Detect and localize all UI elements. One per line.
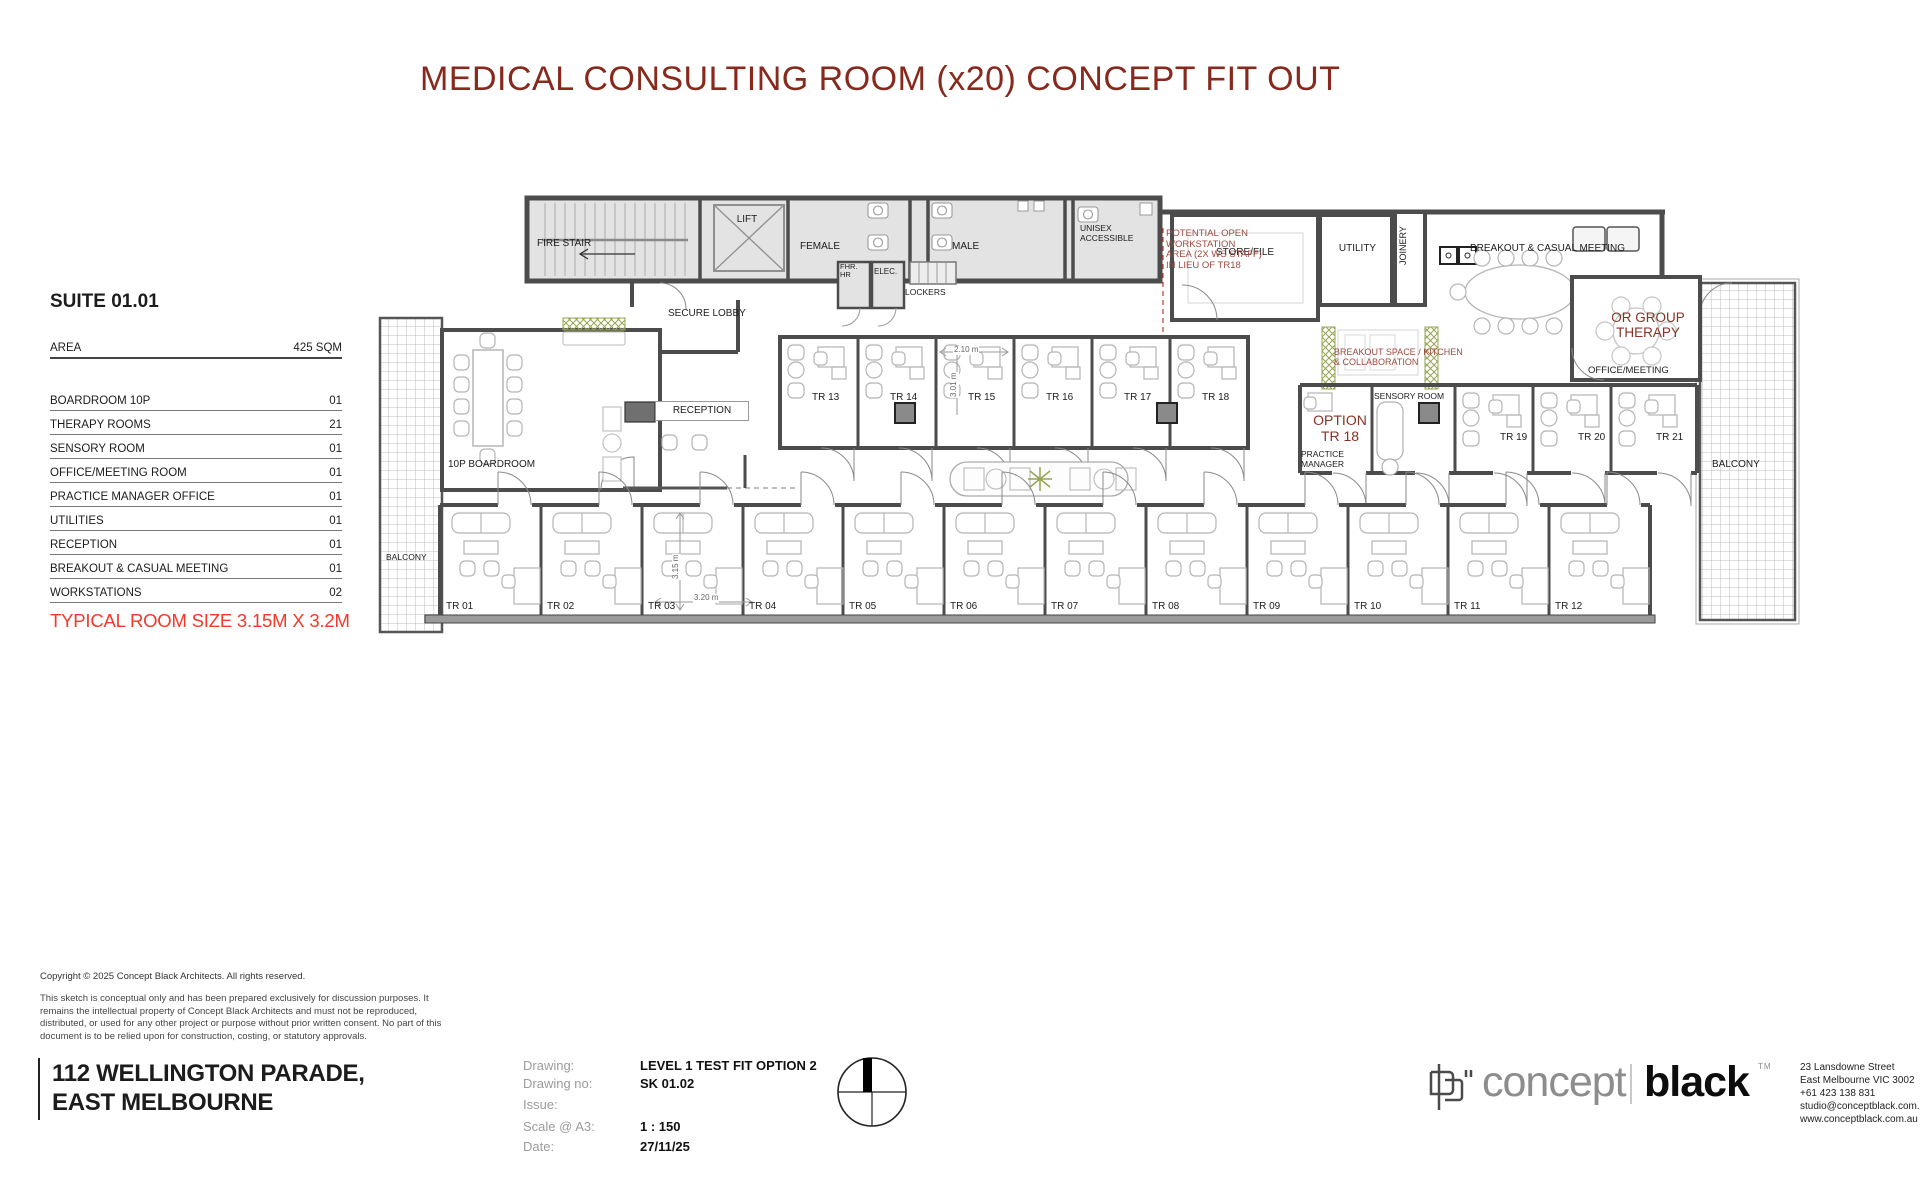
room-label-tr20: TR 20 bbox=[1578, 432, 1605, 443]
scale-value: 1 : 150 bbox=[640, 1119, 680, 1134]
logo-trademark: TM bbox=[1758, 1062, 1772, 1071]
drawing-label: Drawing: bbox=[523, 1058, 574, 1073]
row-label: BREAKOUT & CASUAL MEETING bbox=[50, 563, 228, 575]
room-label-male: MALE bbox=[952, 241, 979, 252]
studio-address-line: studio@conceptblack.com.au bbox=[1800, 1101, 1920, 1112]
room-label-tr02: TR 02 bbox=[547, 601, 574, 612]
date-label: Date: bbox=[523, 1139, 554, 1154]
room-label-elec: ELEC. bbox=[874, 268, 897, 277]
project-address-line2: EAST MELBOURNE bbox=[52, 1089, 273, 1117]
note-breakout-kitchen: BREAKOUT SPACE / KITCHEN & COLLABORATION bbox=[1334, 347, 1463, 367]
studio-address-line: www.conceptblack.com.au bbox=[1800, 1114, 1918, 1125]
project-address-line1: 112 WELLINGTON PARADE, bbox=[52, 1060, 365, 1088]
drawing-value: LEVEL 1 TEST FIT OPTION 2 bbox=[640, 1058, 817, 1073]
room-label-tr21: TR 21 bbox=[1656, 432, 1683, 443]
drawing-no-value: SK 01.02 bbox=[640, 1076, 694, 1091]
schedule-row: RECEPTION01 bbox=[50, 529, 342, 555]
studio-address-line: East Melbourne VIC 3002 bbox=[1800, 1075, 1915, 1086]
floor-plan-sheet: MEDICAL CONSULTING ROOM (x20) CONCEPT FI… bbox=[0, 0, 1920, 1177]
row-value: 01 bbox=[329, 515, 342, 527]
schedule-row: BREAKOUT & CASUAL MEETING01 bbox=[50, 553, 342, 579]
room-label-tr14: TR 14 bbox=[890, 392, 917, 403]
room-label-option-tr18: OPTION TR 18 bbox=[1304, 413, 1376, 444]
row-value: 02 bbox=[329, 587, 342, 599]
room-label-tr06: TR 06 bbox=[950, 601, 977, 612]
schedule-row: BOARDROOM 10P01 bbox=[50, 385, 342, 411]
room-label-tr16: TR 16 bbox=[1046, 392, 1073, 403]
scale-label: Scale @ A3: bbox=[523, 1119, 595, 1134]
schedule-row: UTILITIES01 bbox=[50, 505, 342, 531]
room-label-tr09: TR 09 bbox=[1253, 601, 1280, 612]
dimension-3-01m: 3.01 m bbox=[950, 372, 959, 398]
area-value: 425 SQM bbox=[293, 342, 342, 354]
room-label-female: FEMALE bbox=[800, 241, 840, 252]
address-divider bbox=[38, 1058, 40, 1120]
schedule-row: THERAPY ROOMS21 bbox=[50, 409, 342, 435]
dimension-3-15m: 3.15 m bbox=[672, 554, 681, 580]
row-label: WORKSTATIONS bbox=[50, 587, 142, 599]
room-label-tr01: TR 01 bbox=[446, 601, 473, 612]
logo-text-black: black bbox=[1644, 1058, 1749, 1107]
row-label: BOARDROOM 10P bbox=[50, 395, 150, 407]
row-label: THERAPY ROOMS bbox=[50, 419, 151, 431]
row-value: 01 bbox=[329, 491, 342, 503]
note-potential-workstation: POTENTIAL OPEN WORKSTATION AREA (2X WS S… bbox=[1166, 229, 1262, 272]
room-label-office-meeting: OFFICE/MEETING bbox=[1588, 366, 1669, 377]
row-value: 21 bbox=[329, 419, 342, 431]
area-label: AREA bbox=[50, 342, 81, 354]
room-label-tr10: TR 10 bbox=[1354, 601, 1381, 612]
area-row: AREA 425 SQM bbox=[50, 332, 342, 359]
room-label-tr11: TR 11 bbox=[1454, 601, 1481, 612]
logo-divider bbox=[1630, 1064, 1632, 1104]
room-label-lockers: LOCKERS bbox=[905, 288, 946, 298]
room-label-breakout-casual-meeting: BREAKOUT & CASUAL MEETING bbox=[1440, 243, 1655, 254]
room-label-tr15: TR 15 bbox=[968, 392, 995, 403]
schedule-row: SENSORY ROOM01 bbox=[50, 433, 342, 459]
room-label-balcony-left: BALCONY bbox=[386, 553, 427, 563]
disclaimer-paragraph: This sketch is conceptual only and has b… bbox=[40, 993, 445, 1044]
room-label-tr03: TR 03 bbox=[648, 601, 675, 612]
room-label-tr12: TR 12 bbox=[1555, 601, 1582, 612]
studio-address-line: +61 423 138 831 bbox=[1800, 1088, 1875, 1099]
room-label-or-group-therapy: OR GROUP THERAPY bbox=[1598, 310, 1698, 340]
issue-label: Issue: bbox=[523, 1097, 558, 1112]
row-label: OFFICE/MEETING ROOM bbox=[50, 467, 187, 479]
room-label-practice-manager: PRACTICE MANAGER bbox=[1301, 450, 1344, 469]
drawing-no-label: Drawing no: bbox=[523, 1076, 592, 1091]
concept-black-logo-icon bbox=[1425, 1056, 1477, 1116]
room-label-tr05: TR 05 bbox=[849, 601, 876, 612]
copyright-line: Copyright © 2025 Concept Black Architect… bbox=[40, 971, 305, 982]
schedule-row: WORKSTATIONS02 bbox=[50, 577, 342, 603]
room-label-tr07: TR 07 bbox=[1051, 601, 1078, 612]
date-value: 27/11/25 bbox=[640, 1139, 690, 1154]
dimension-3-20m: 3.20 m bbox=[693, 594, 719, 603]
room-label-sensory-room: SENSORY ROOM bbox=[1374, 392, 1444, 402]
room-label-tr04: TR 04 bbox=[749, 601, 776, 612]
row-value: 01 bbox=[329, 563, 342, 575]
room-label-tr18: TR 18 bbox=[1202, 392, 1229, 403]
room-label-tr08: TR 08 bbox=[1152, 601, 1179, 612]
room-label-secure-lobby: SECURE LOBBY bbox=[668, 308, 746, 319]
row-label: SENSORY ROOM bbox=[50, 443, 145, 455]
logo-text-concept: concept bbox=[1482, 1058, 1626, 1107]
row-label: UTILITIES bbox=[50, 515, 104, 527]
studio-address-line: 23 Lansdowne Street bbox=[1800, 1062, 1895, 1073]
room-label-reception: RECEPTION bbox=[655, 401, 749, 421]
schedule-row: OFFICE/MEETING ROOM01 bbox=[50, 457, 342, 483]
row-value: 01 bbox=[329, 443, 342, 455]
room-label-balcony-right: BALCONY bbox=[1712, 459, 1760, 470]
row-value: 01 bbox=[329, 467, 342, 479]
row-label: PRACTICE MANAGER OFFICE bbox=[50, 491, 215, 503]
room-label-boardroom: 10P BOARDROOM bbox=[448, 459, 535, 470]
room-label-tr19: TR 19 bbox=[1500, 432, 1527, 443]
dimension-2-10m: 2.10 m bbox=[953, 346, 979, 355]
north-arrow-icon bbox=[835, 1053, 909, 1131]
suite-heading: SUITE 01.01 bbox=[50, 291, 159, 313]
room-label-fhr-hr: FHR. HR bbox=[840, 263, 858, 280]
room-label-utility: UTILITY bbox=[1325, 243, 1390, 254]
room-label-tr13: TR 13 bbox=[812, 392, 839, 403]
room-label-joinery: JOINERY bbox=[1398, 226, 1408, 265]
row-value: 01 bbox=[329, 539, 342, 551]
schedule-row: PRACTICE MANAGER OFFICE01 bbox=[50, 481, 342, 507]
room-label-tr17: TR 17 bbox=[1124, 392, 1151, 403]
sheet-title: MEDICAL CONSULTING ROOM (x20) CONCEPT FI… bbox=[420, 60, 1320, 99]
row-label: RECEPTION bbox=[50, 539, 117, 551]
room-label-fire-stair: FIRE STAIR bbox=[537, 238, 591, 249]
row-value: 01 bbox=[329, 395, 342, 407]
room-label-unisex-accessible: UNISEX ACCESSIBLE bbox=[1080, 224, 1158, 243]
typical-room-size-note: TYPICAL ROOM SIZE 3.15M X 3.2M bbox=[50, 610, 350, 632]
room-label-lift: LIFT bbox=[722, 214, 772, 225]
